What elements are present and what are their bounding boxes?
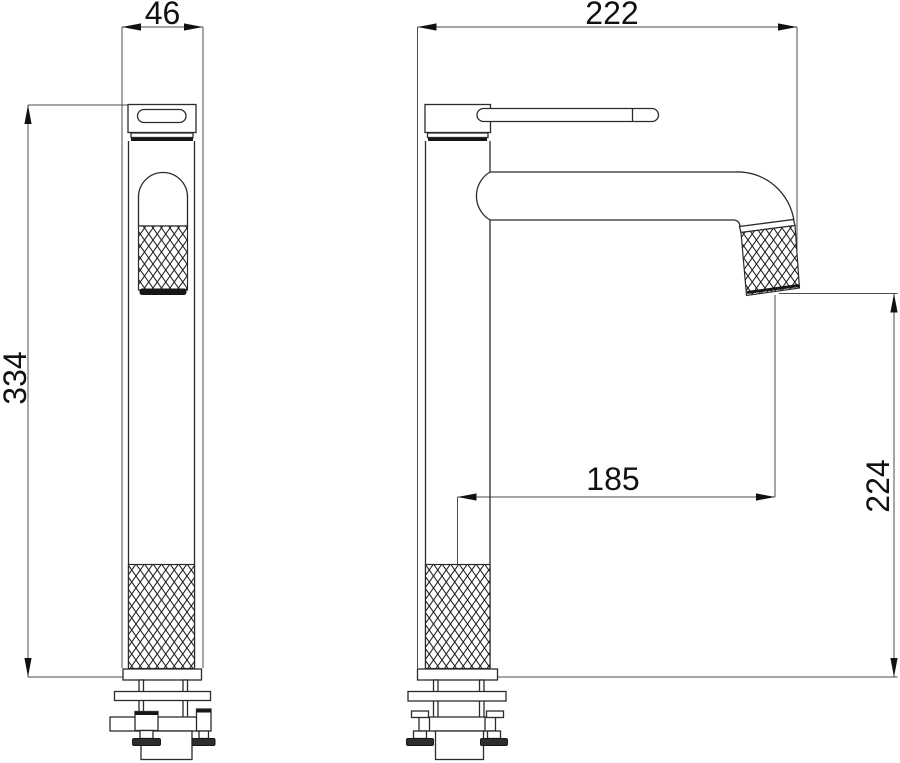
arrow-up-icon [24, 105, 31, 124]
side-base-knurl [426, 565, 491, 669]
front-height-label: 334 [0, 351, 33, 404]
side-collar-band [428, 133, 489, 138]
arrow-down-icon [24, 658, 31, 677]
arrow-right-icon [778, 23, 797, 30]
side-outlet-height-dimension: 224 [498, 294, 898, 678]
arrow-up-icon [890, 294, 897, 313]
front-lever-slot [138, 110, 187, 123]
mounting-nut [487, 711, 504, 718]
arrow-down-icon [890, 658, 897, 677]
front-mounting-hardware [110, 680, 215, 760]
arrow-right-icon [756, 493, 775, 500]
bolt-stem [199, 731, 209, 739]
front-view: 46 334 [0, 0, 215, 760]
bolt-head [133, 739, 161, 746]
front-collar-band [131, 133, 193, 138]
aerator-knurl [741, 226, 800, 296]
front-handle-knurl-grip [139, 226, 188, 290]
side-outlet-height-label: 224 [860, 459, 896, 512]
front-base-knurl [129, 565, 195, 669]
faucet-side [407, 105, 800, 760]
side-mounting-hardware [407, 680, 508, 760]
faucet-front [110, 105, 215, 760]
bolt-stem [414, 731, 427, 739]
bolt-head [481, 739, 508, 746]
front-handle-grip-base [140, 289, 187, 296]
side-base-flange [418, 669, 498, 680]
bolt-head [192, 739, 215, 746]
bolt-stem [488, 731, 501, 739]
side-spout [476, 172, 799, 296]
arrow-right-icon [184, 23, 203, 30]
side-lever-handle [477, 109, 659, 122]
mounting-nut [412, 711, 429, 718]
side-view: 222 185 224 [407, 0, 898, 760]
arrow-left-icon [458, 493, 477, 500]
bolt-head [407, 739, 434, 746]
side-reach-dimension: 185 [458, 295, 776, 564]
clamp-bracket [110, 717, 208, 731]
side-reach-label: 185 [586, 461, 639, 497]
drawing-canvas: 46 334 [0, 0, 900, 763]
washer-plate [115, 692, 211, 701]
front-height-dimension: 334 [0, 105, 130, 677]
front-base-flange [123, 669, 202, 680]
front-handle-dome [139, 173, 188, 227]
side-depth-label: 222 [585, 0, 638, 31]
arrow-left-icon [122, 23, 141, 30]
arrow-left-icon [418, 23, 437, 30]
clamp-bracket [419, 717, 496, 731]
washer-plate [408, 692, 506, 702]
inlet-pipe [436, 731, 484, 760]
bolt-stem [140, 731, 153, 739]
page: 46 334 [0, 0, 900, 763]
front-width-label: 46 [145, 0, 181, 31]
